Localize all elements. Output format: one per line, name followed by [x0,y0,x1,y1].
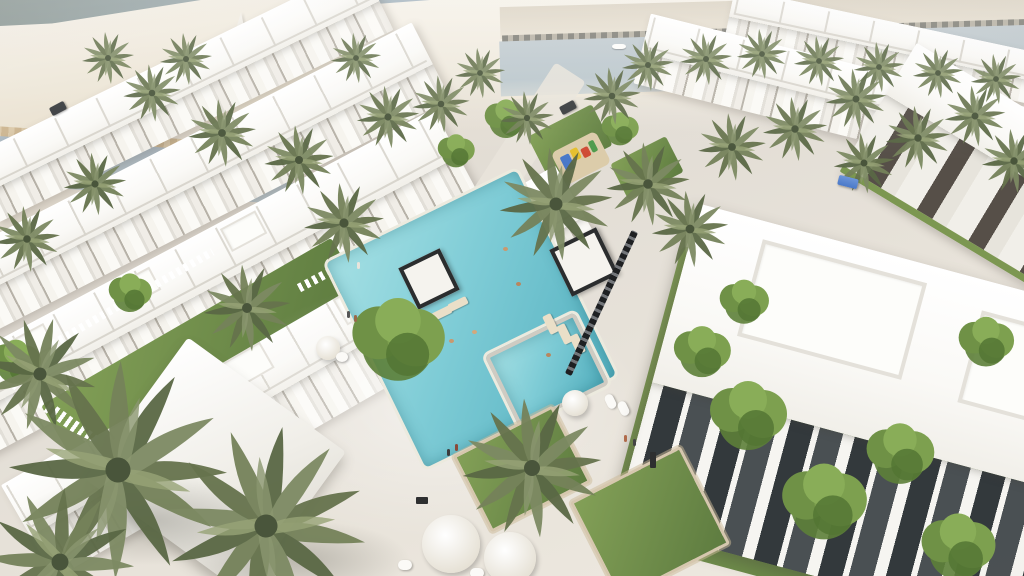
swimmer [472,330,477,334]
tree [910,499,1006,576]
parasol [484,532,536,576]
person [624,435,627,442]
palm-tree [78,28,138,88]
signpost [650,452,656,468]
tree [338,280,458,400]
palm-tree [452,388,612,548]
person [354,315,357,322]
bench [416,497,428,504]
person [357,262,360,269]
palm-tree [977,124,1024,198]
palm-tree [259,120,339,200]
chair [398,560,412,570]
palm-tree [0,201,65,277]
palm-tree [156,29,216,89]
tree [102,265,158,321]
parasol [422,515,480,573]
tree [856,410,944,498]
palm-tree [327,29,385,87]
palm-tree [646,185,734,273]
swimmer [546,353,551,357]
palm-tree [618,35,678,95]
palm-tree [59,148,131,220]
aerial-render-scene [0,0,1024,576]
palm-tree [733,25,791,83]
palm-tree [829,128,899,198]
tree [712,270,776,334]
palm-tree [197,258,297,358]
tree [950,306,1022,378]
person [347,311,350,318]
chair [470,568,484,576]
person [633,439,636,446]
person [455,444,458,451]
person [447,449,450,456]
swimmer [516,282,521,286]
palm-tree [496,87,558,149]
palm-tree [676,29,736,89]
palm-tree [183,94,261,172]
